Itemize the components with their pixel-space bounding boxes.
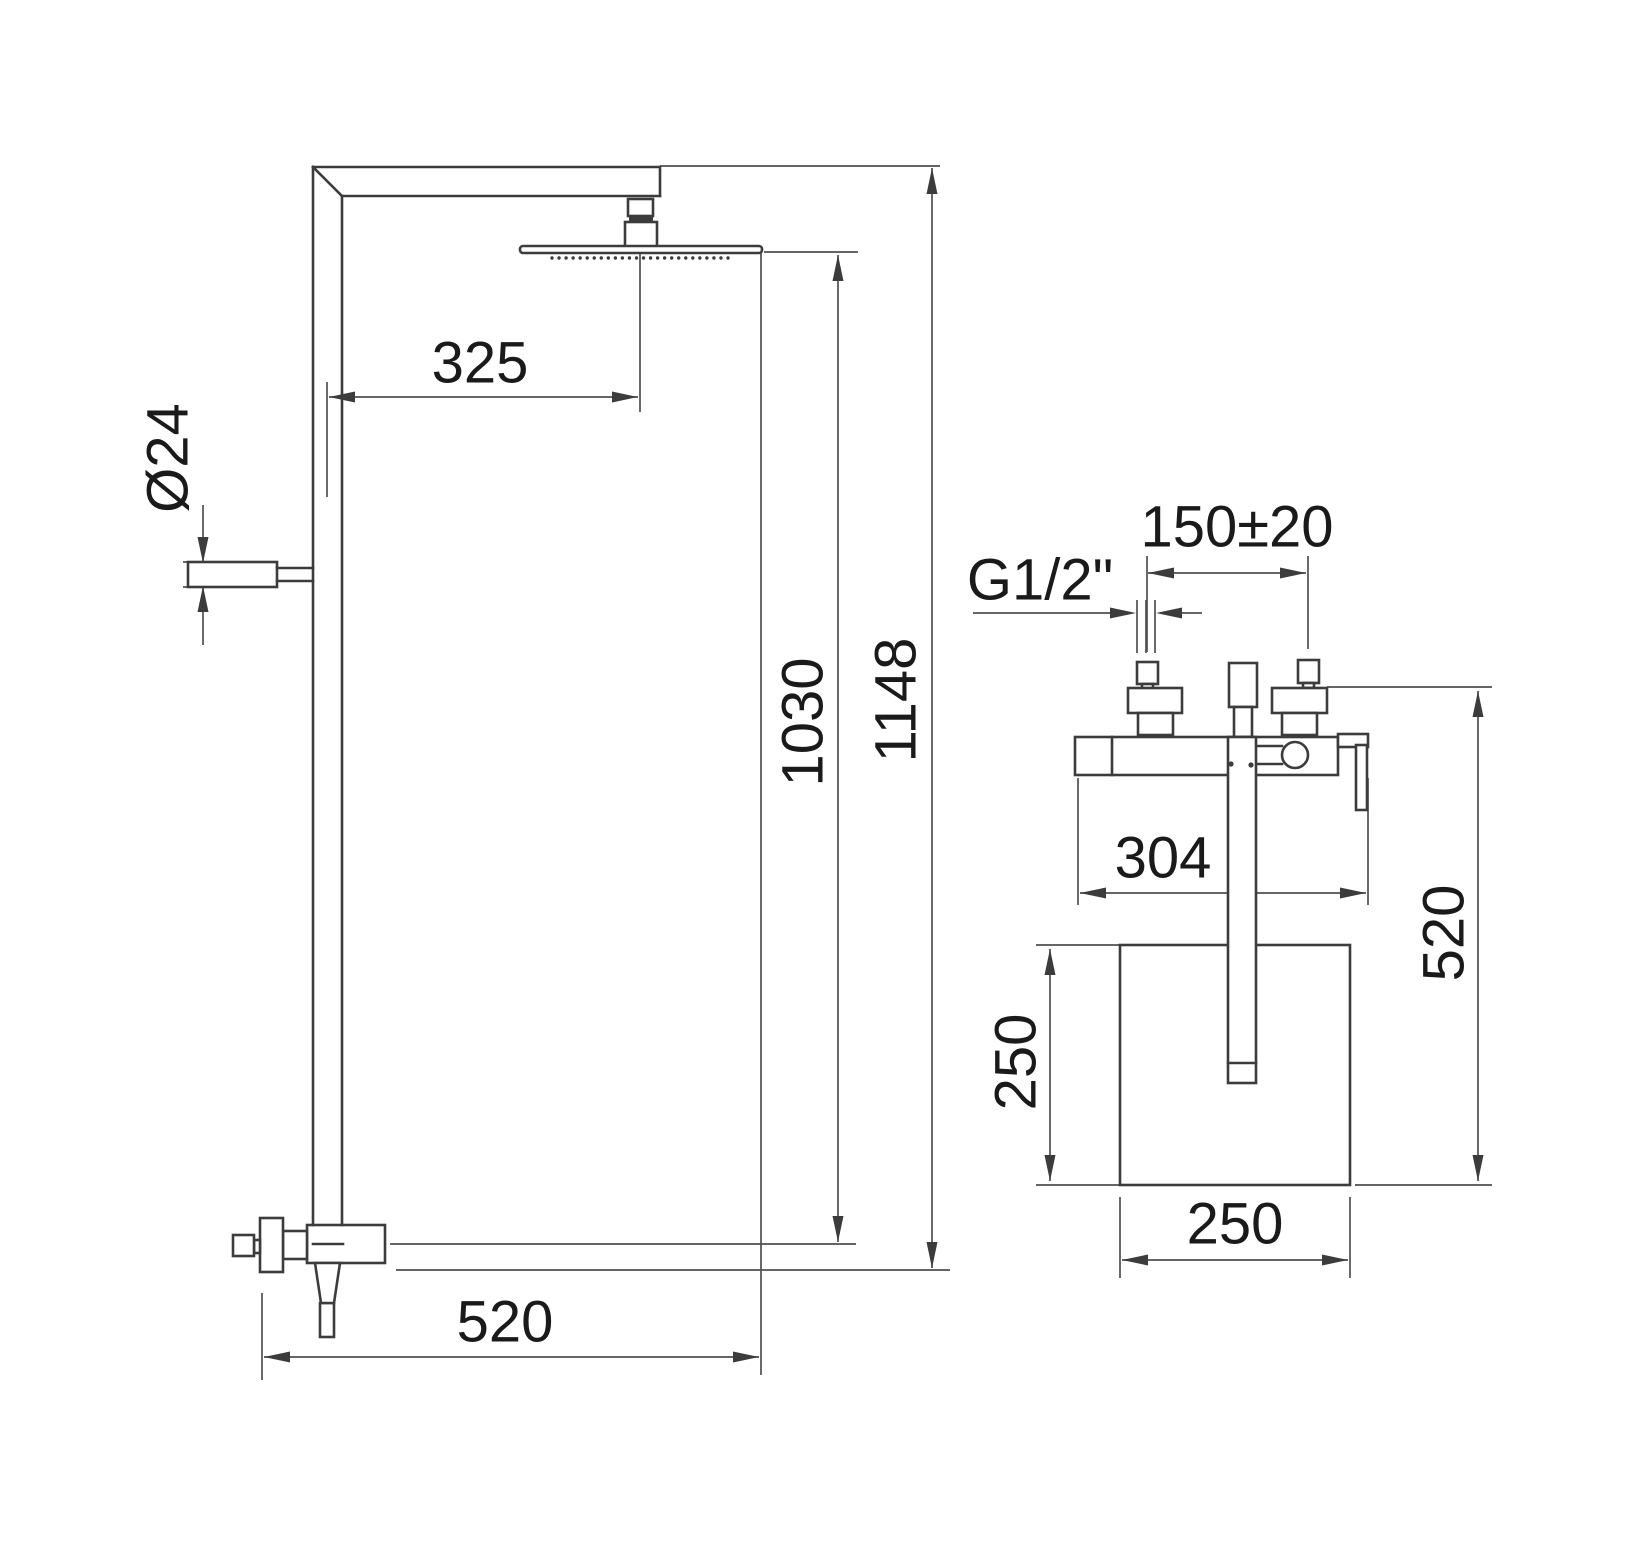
- dim-label-tray-width-250: 250: [1187, 1192, 1284, 1257]
- nozzle-dot: [670, 256, 673, 259]
- left-inlet-nut: [1137, 662, 1158, 684]
- nozzle-dot: [677, 256, 680, 259]
- handshower-neck: [1234, 707, 1252, 737]
- mixer-screw-right: [1248, 762, 1253, 767]
- arrowhead-down-17: [1473, 1155, 1484, 1181]
- dim-label-bracket-diameter-24: Ø24: [136, 403, 201, 513]
- nozzle-dot: [663, 256, 666, 259]
- arrowhead-left-13: [1156, 608, 1182, 619]
- nozzle-dot: [656, 256, 659, 259]
- nozzle-dot: [593, 256, 596, 259]
- arrowhead-right-15: [1340, 888, 1366, 899]
- nozzle-dot: [635, 256, 638, 259]
- mixer-lever-drop: [1356, 745, 1367, 810]
- arrowhead-right-5: [733, 1352, 759, 1363]
- arrowhead-up-18: [1045, 949, 1056, 975]
- nozzle-dot: [607, 256, 610, 259]
- dim-label-tray-height-250: 250: [984, 1014, 1049, 1111]
- nozzle-dot: [649, 256, 652, 259]
- nozzle-dot: [705, 256, 708, 259]
- arrowhead-left-20: [1122, 1255, 1148, 1266]
- dim-label-head-offset-325: 325: [432, 331, 529, 396]
- technical-drawing-page: 325Ø2452010301148150±20G1/2"304520250250: [0, 0, 1650, 1550]
- arrowhead-up-6: [833, 255, 844, 281]
- arrowhead-up-8: [927, 168, 938, 194]
- right-inlet-nut: [1298, 660, 1319, 683]
- shower-system-dimension-drawing: 325Ø2452010301148150±20G1/2"304520250250: [0, 0, 1650, 1550]
- nozzle-dot: [564, 256, 567, 259]
- diverter-knob: [233, 1235, 254, 1256]
- dim-label-overall-height-1148: 1148: [864, 638, 929, 763]
- handshower-wand: [1228, 737, 1256, 1083]
- arrowhead-down-19: [1045, 1155, 1056, 1181]
- wall-bracket-stub: [188, 562, 277, 587]
- head-connector-nut: [628, 199, 653, 216]
- outlet-taper: [315, 1263, 340, 1303]
- handshower-grip: [1229, 663, 1257, 707]
- shower-head-plate: [520, 246, 762, 253]
- arrowhead-left-10: [1148, 568, 1174, 579]
- diverter-knob-body: [260, 1218, 283, 1272]
- corner-chamfer: [313, 167, 342, 196]
- nozzle-dot: [691, 256, 694, 259]
- outlet-stub: [320, 1303, 334, 1337]
- nozzle-dot: [628, 256, 631, 259]
- nozzle-dot: [712, 256, 715, 259]
- nozzle-dot: [571, 256, 574, 259]
- nozzle-dot: [600, 256, 603, 259]
- arrowhead-right-11: [1280, 568, 1306, 579]
- right-inlet-neck: [1282, 713, 1317, 735]
- head-connector-seal: [629, 215, 653, 222]
- left-inlet-neck: [1138, 713, 1173, 735]
- dim-label-bottom-projection-520: 520: [457, 1290, 554, 1355]
- head-connector-base: [625, 222, 657, 247]
- nozzle-dot: [557, 256, 560, 259]
- nozzle-dot: [621, 256, 624, 259]
- label-layer: 325Ø2452010301148150±20G1/2"304520250250: [136, 331, 1477, 1355]
- nozzle-dot: [550, 256, 553, 259]
- mixer-screw-left: [1228, 761, 1233, 766]
- arrowhead-down-7: [833, 1216, 844, 1242]
- arrowhead-right-21: [1322, 1255, 1348, 1266]
- mixer-ball-joint: [1282, 742, 1308, 768]
- arrowhead-down-9: [927, 1242, 938, 1268]
- nozzle-dot: [586, 256, 589, 259]
- arrowhead-right-1: [612, 392, 638, 403]
- dim-label-side-height-520: 520: [1412, 885, 1477, 982]
- nozzle-dot: [684, 256, 687, 259]
- arrowhead-left-14: [1080, 888, 1106, 899]
- nozzle-dot: [719, 256, 722, 259]
- nozzle-dot: [578, 256, 581, 259]
- nozzle-dot: [726, 256, 729, 259]
- arrowhead-right-12: [1110, 608, 1136, 619]
- dim-label-inlet-spacing-150: 150±20: [1140, 495, 1333, 560]
- dim-label-body-width-304: 304: [1115, 826, 1212, 891]
- arrowhead-down-2: [198, 537, 209, 563]
- dim-label-height-to-head-1030: 1030: [771, 657, 836, 786]
- nozzle-dot: [698, 256, 701, 259]
- left-inlet-block: [1128, 688, 1182, 713]
- diverter-mid-piece: [283, 1231, 307, 1259]
- dim-label-thread-size-g12: G1/2": [967, 548, 1113, 613]
- nozzle-dot: [642, 256, 645, 259]
- nozzle-dot: [614, 256, 617, 259]
- right-inlet-block: [1272, 688, 1327, 713]
- arrowhead-up-16: [1473, 691, 1484, 717]
- arrowhead-up-3: [198, 586, 209, 612]
- arrowhead-left-4: [264, 1352, 290, 1363]
